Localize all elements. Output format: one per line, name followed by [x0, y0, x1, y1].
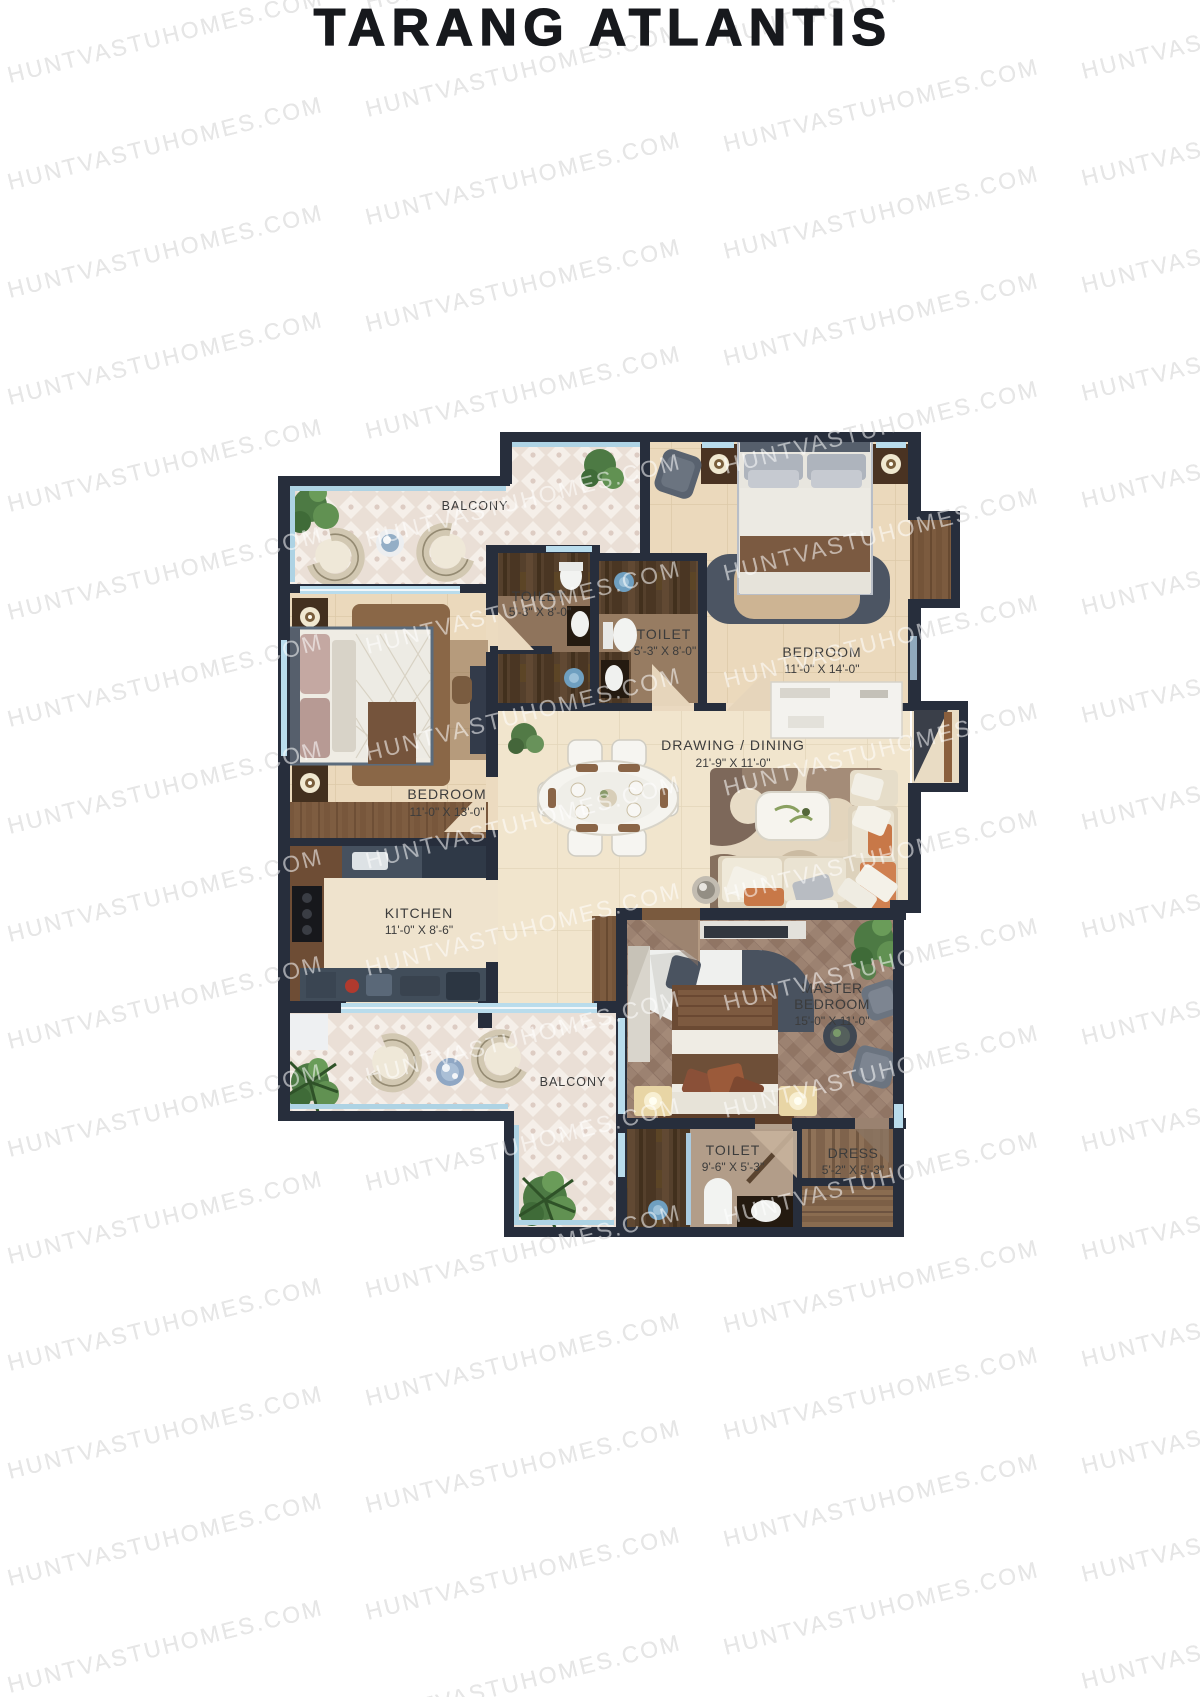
svg-text:5'-3" X 8'-0": 5'-3" X 8'-0" — [634, 644, 696, 658]
svg-text:15'-0" X 11'-0": 15'-0" X 11'-0" — [795, 1014, 870, 1028]
svg-text:DRAWING / DINING: DRAWING / DINING — [661, 737, 805, 753]
svg-text:BALCONY: BALCONY — [442, 499, 509, 513]
svg-text:9'-6" X 5'-3": 9'-6" X 5'-3" — [702, 1160, 764, 1174]
svg-text:5'-3" X 8'-0": 5'-3" X 8'-0" — [509, 605, 571, 619]
svg-text:BALCONY: BALCONY — [540, 1075, 607, 1089]
svg-text:BEDROOM: BEDROOM — [794, 996, 870, 1012]
svg-text:TOILET: TOILET — [637, 626, 692, 642]
svg-text:TOILET: TOILET — [706, 1142, 761, 1158]
svg-text:BEDROOM: BEDROOM — [782, 644, 861, 660]
svg-text:TOILET: TOILET — [512, 588, 567, 604]
svg-text:11'-0" X 14'-0": 11'-0" X 14'-0" — [785, 662, 860, 676]
svg-text:MASTER: MASTER — [801, 980, 862, 996]
svg-text:21'-9" X 11'-0": 21'-9" X 11'-0" — [696, 756, 771, 770]
svg-text:5'-2" X 5'-3": 5'-2" X 5'-3" — [822, 1163, 884, 1177]
svg-text:KITCHEN: KITCHEN — [385, 905, 453, 921]
svg-text:DRESS: DRESS — [828, 1145, 879, 1161]
svg-text:BEDROOM: BEDROOM — [407, 786, 486, 802]
svg-text:11'-0" X 8'-6": 11'-0" X 8'-6" — [385, 923, 453, 937]
svg-text:11'-0" X 13'-0": 11'-0" X 13'-0" — [410, 805, 485, 819]
